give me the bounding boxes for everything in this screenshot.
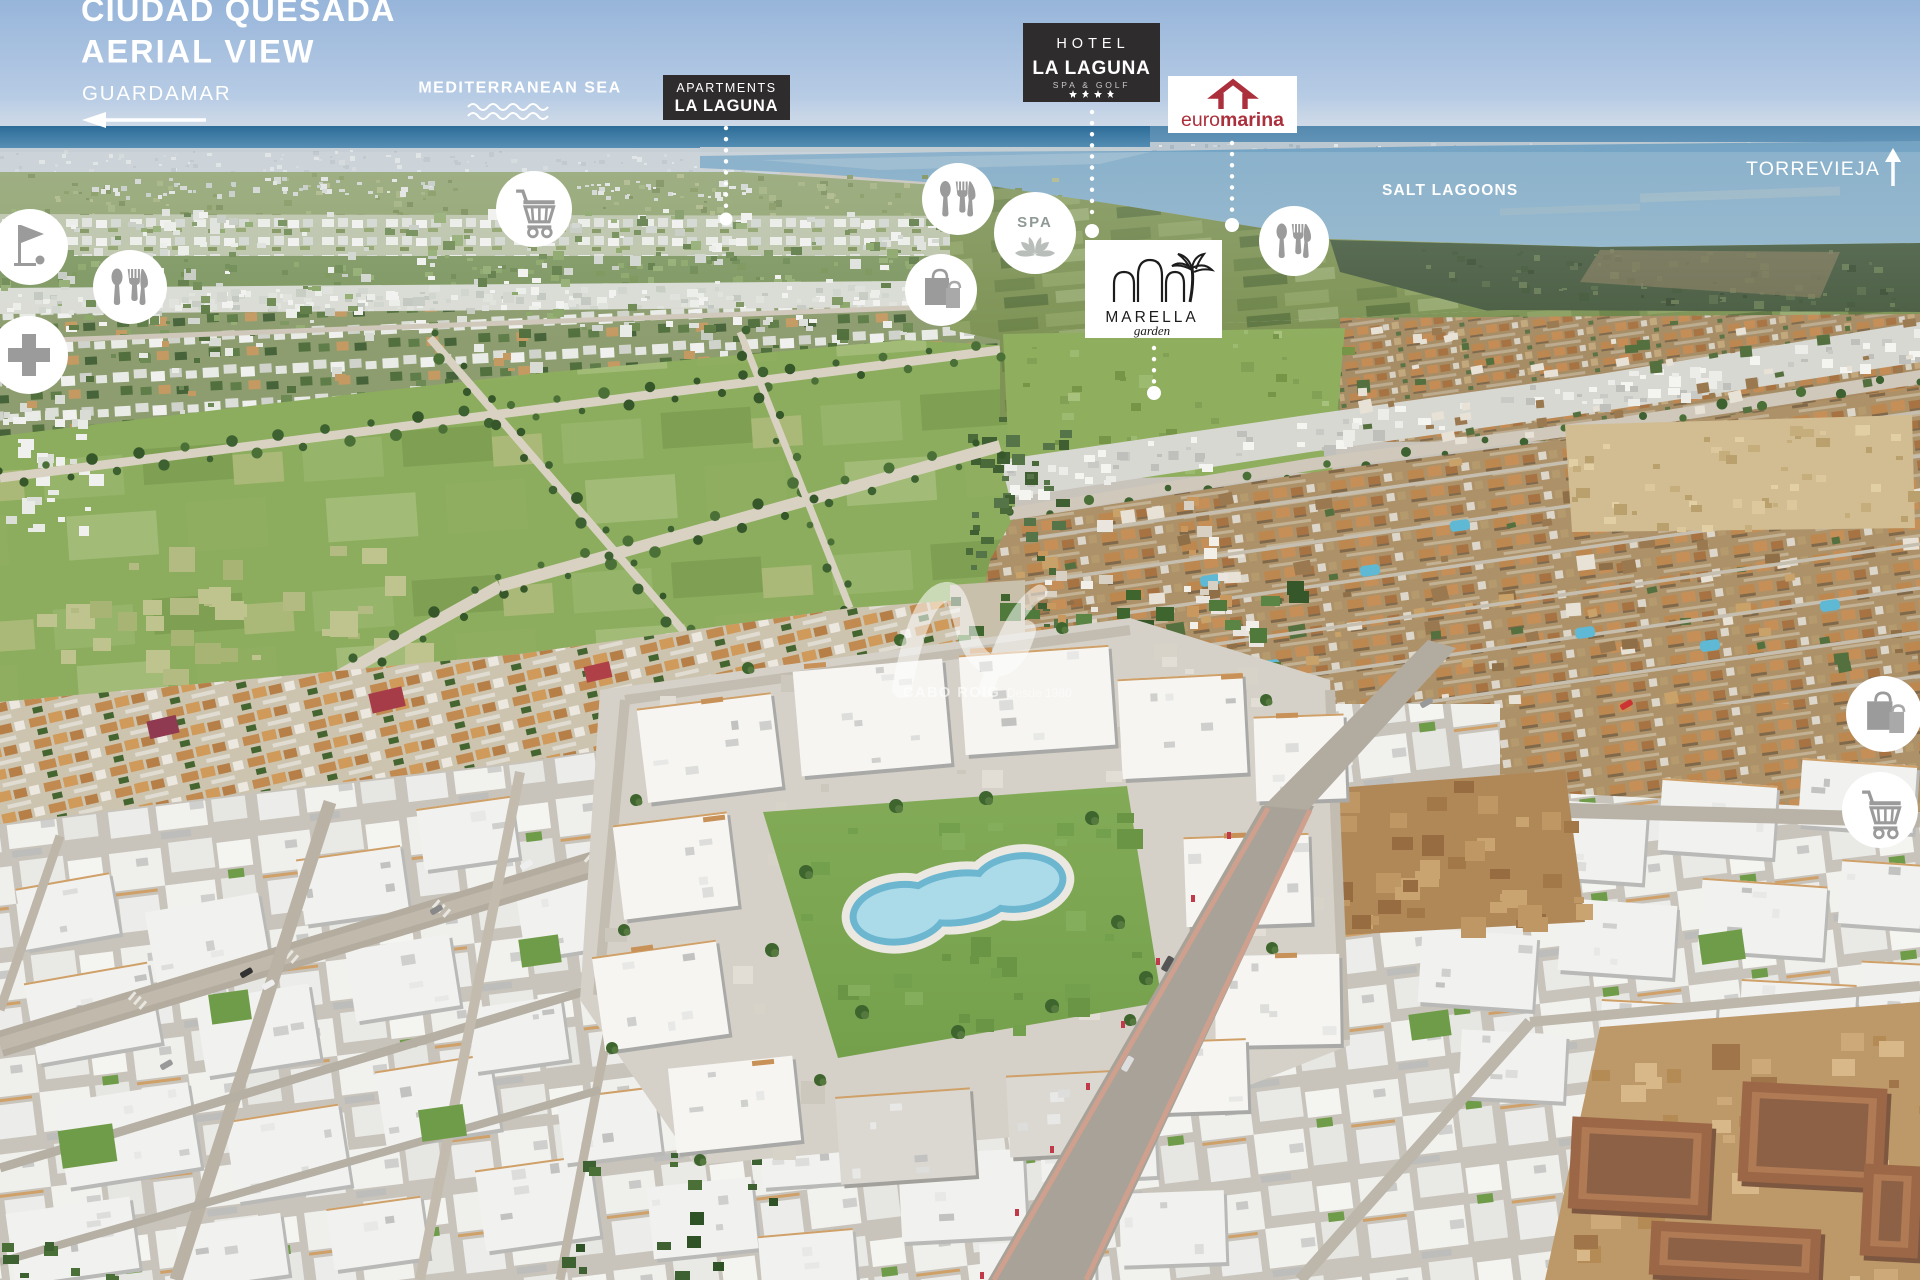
svg-text:Desde 1980: Desde 1980 bbox=[1007, 686, 1072, 700]
svg-text:APARTMENTS: APARTMENTS bbox=[676, 81, 776, 95]
svg-text:LA LAGUNA: LA LAGUNA bbox=[675, 97, 779, 115]
svg-text:GUARDAMAR: GUARDAMAR bbox=[82, 82, 231, 105]
svg-text:TORREVIEJA: TORREVIEJA bbox=[1746, 158, 1880, 180]
svg-text:SALT LAGOONS: SALT LAGOONS bbox=[1382, 182, 1518, 199]
svg-text:MEDITERRANEAN SEA: MEDITERRANEAN SEA bbox=[418, 80, 621, 97]
svg-text:HOTEL: HOTEL bbox=[1056, 36, 1129, 52]
svg-text:CABO ROIG: CABO ROIG bbox=[903, 685, 1000, 701]
svg-text:euromarina: euromarina bbox=[1181, 109, 1284, 131]
svg-text:SPA & GOLF: SPA & GOLF bbox=[1053, 80, 1130, 90]
svg-text:LA LAGUNA: LA LAGUNA bbox=[1032, 58, 1150, 79]
svg-text:garden: garden bbox=[1134, 323, 1170, 338]
svg-text:AERIAL VIEW: AERIAL VIEW bbox=[81, 34, 315, 70]
svg-text:CIUDAD QUESADA: CIUDAD QUESADA bbox=[81, 0, 396, 28]
svg-text:SPA: SPA bbox=[1017, 214, 1053, 231]
